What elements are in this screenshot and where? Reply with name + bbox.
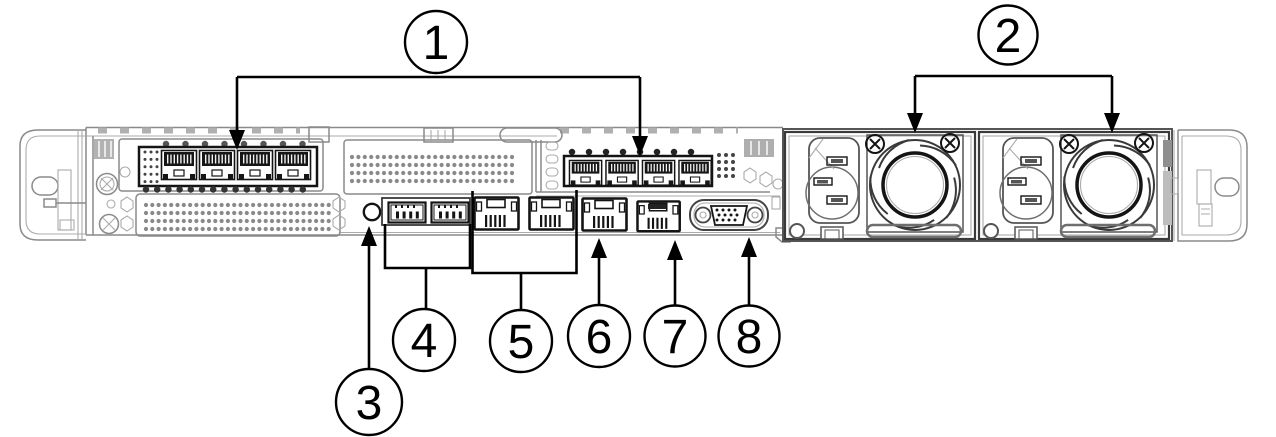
vga-port (690, 200, 768, 230)
figure-server-rear-view: 1 2 3 4 5 6 7 8 (0, 0, 1276, 437)
callout-4: 4 (385, 224, 470, 371)
callout-1-number: 1 (423, 17, 450, 70)
callout-2-number: 2 (995, 10, 1022, 63)
backplate-fasteners (94, 139, 133, 234)
callout-4-number: 4 (411, 315, 438, 368)
power-supply-1 (785, 132, 975, 243)
vent-panel-center (344, 140, 532, 194)
callout-5-number: 5 (508, 316, 535, 369)
ethernet-port-6 (583, 199, 627, 231)
management-port (637, 201, 679, 231)
ocp-network-adapter (536, 139, 783, 196)
callout-6-number: 6 (586, 311, 613, 364)
arrow-down-icon (632, 136, 648, 156)
right-rack-ear (1171, 130, 1247, 241)
vent-dot-grid (719, 155, 733, 183)
callout-3: 3 (336, 226, 402, 435)
callout-7-number: 7 (662, 311, 689, 364)
callout-7: 7 (645, 240, 706, 367)
psu-bay (783, 129, 1172, 243)
vent-panel-left (136, 194, 340, 236)
arrow-up-icon (667, 240, 683, 260)
power-supply-2 (979, 132, 1169, 243)
ear-oval-hole (32, 177, 58, 195)
ear-oval-hole (1215, 178, 1239, 196)
pcie-network-adapter (119, 139, 323, 191)
left-rack-ear (20, 130, 86, 240)
vent-dot-grid (145, 152, 157, 182)
callout-5: 5 (473, 190, 577, 372)
identification-button (364, 204, 380, 220)
arrow-up-icon (741, 237, 757, 257)
server-rear-diagram: 1 2 3 4 5 6 7 8 (0, 0, 1276, 437)
usb-ports (382, 198, 470, 225)
callout-8-number: 8 (736, 311, 763, 364)
arrow-up-icon (591, 238, 607, 258)
arrow-up-icon (361, 226, 377, 246)
callout-2: 2 (907, 6, 1120, 134)
ethernet-port-pair (475, 198, 574, 230)
callout-3-number: 3 (356, 377, 383, 430)
callout-8: 8 (719, 237, 780, 367)
